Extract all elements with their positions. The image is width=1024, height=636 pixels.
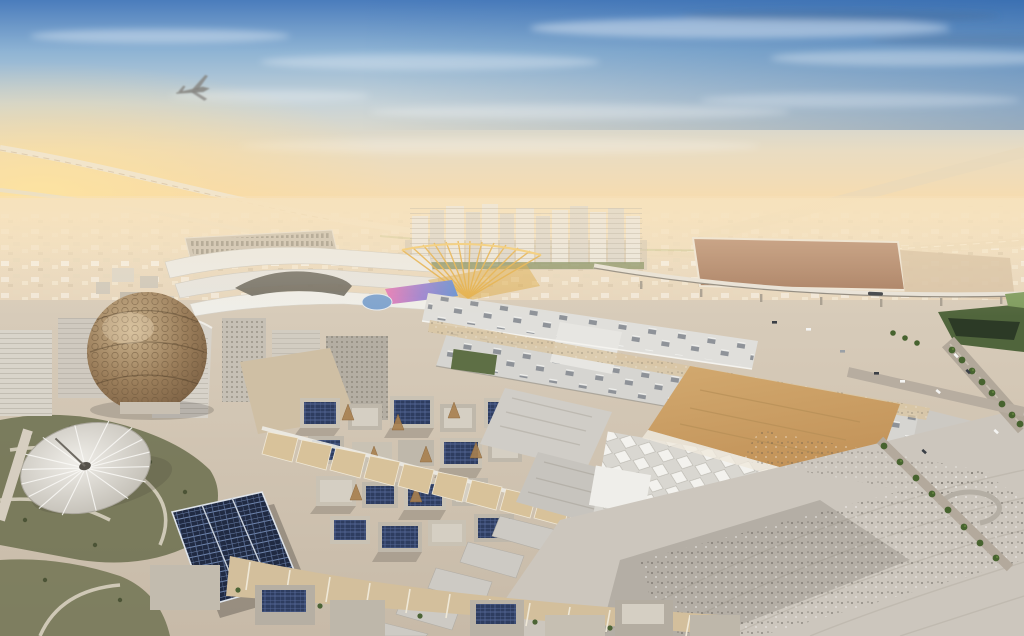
dome-plaza-base [120,402,180,414]
atmosphere-haze [0,196,1024,316]
scene-canvas [0,0,1024,636]
aerial-expo-city-rendering [0,0,1024,636]
